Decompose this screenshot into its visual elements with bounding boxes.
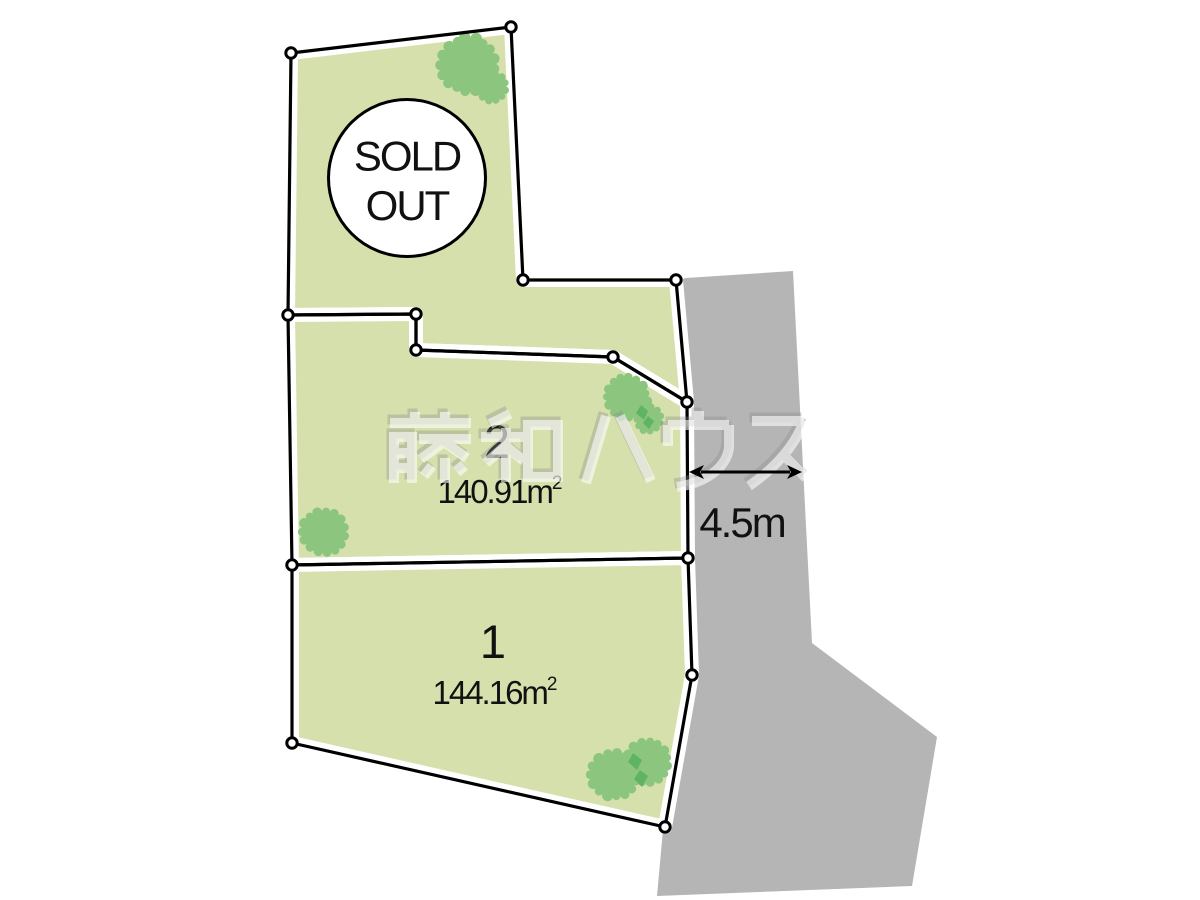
svg-text:4.5m: 4.5m	[699, 499, 784, 546]
svg-text:OUT: OUT	[366, 182, 450, 229]
svg-text:1: 1	[480, 615, 506, 668]
svg-text:144.16m2: 144.16m2	[432, 674, 556, 711]
svg-text:SOLD: SOLD	[354, 133, 461, 180]
